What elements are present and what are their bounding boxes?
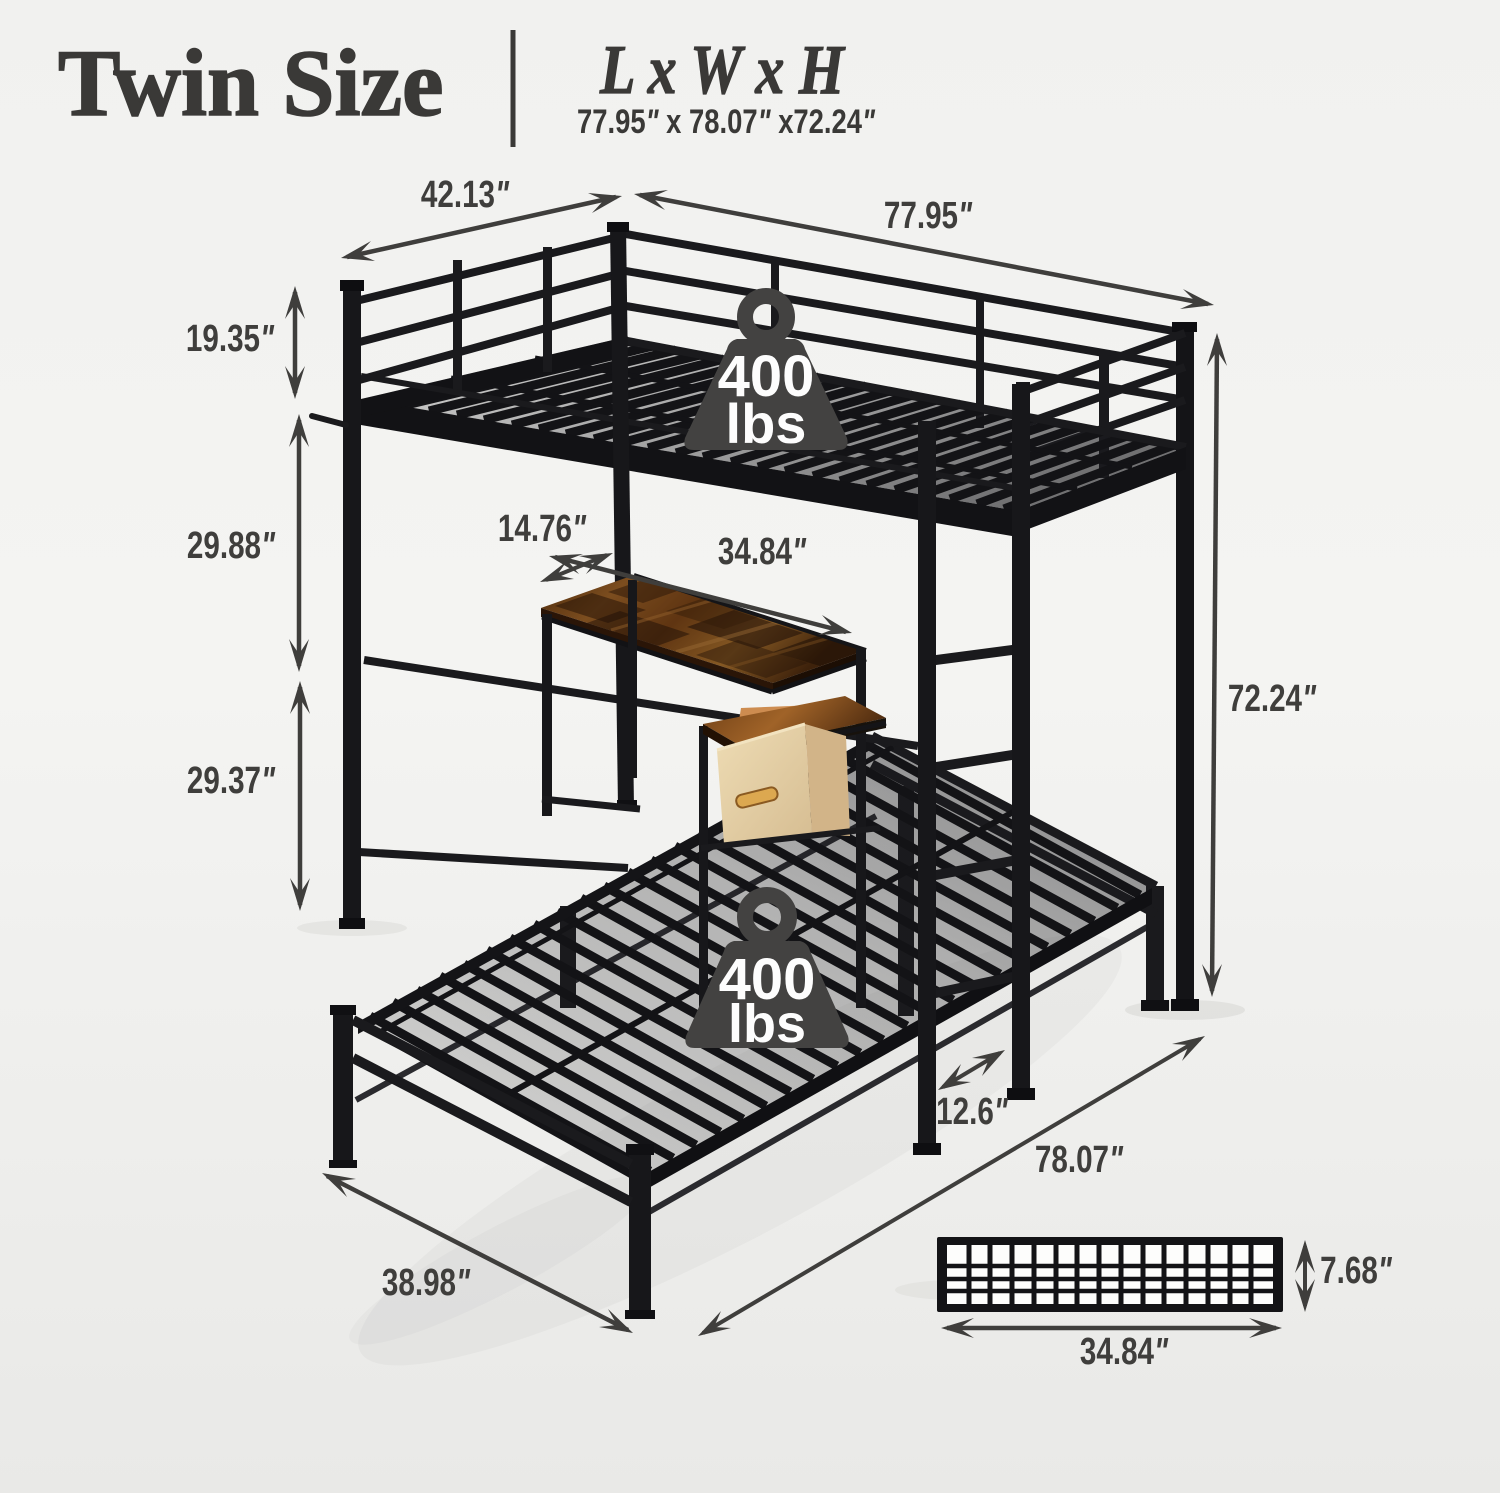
svg-text:14.76": 14.76" [498, 508, 587, 550]
svg-text:12.6": 12.6" [936, 1091, 1008, 1133]
svg-text:77.95" x 78.07" x72.24": 77.95" x 78.07" x72.24" [577, 103, 876, 141]
svg-text:lbs: lbs [728, 994, 806, 1054]
svg-text:29.37": 29.37" [187, 760, 276, 802]
svg-text:L x W x H: L x W x H [599, 32, 846, 109]
svg-text:42.13": 42.13" [421, 174, 510, 216]
svg-text:19.35": 19.35" [186, 318, 275, 360]
svg-text:Twin Size: Twin Size [58, 31, 444, 136]
svg-text:77.95": 77.95" [884, 195, 973, 237]
svg-text:78.07": 78.07" [1035, 1139, 1124, 1181]
svg-text:34.84": 34.84" [1080, 1331, 1169, 1373]
svg-text:7.68": 7.68" [1320, 1250, 1392, 1292]
svg-text:38.98": 38.98" [382, 1262, 471, 1304]
svg-text:29.88": 29.88" [187, 525, 276, 567]
svg-text:34.84": 34.84" [718, 531, 807, 573]
svg-text:lbs: lbs [726, 392, 807, 455]
svg-text:72.24": 72.24" [1228, 678, 1317, 720]
